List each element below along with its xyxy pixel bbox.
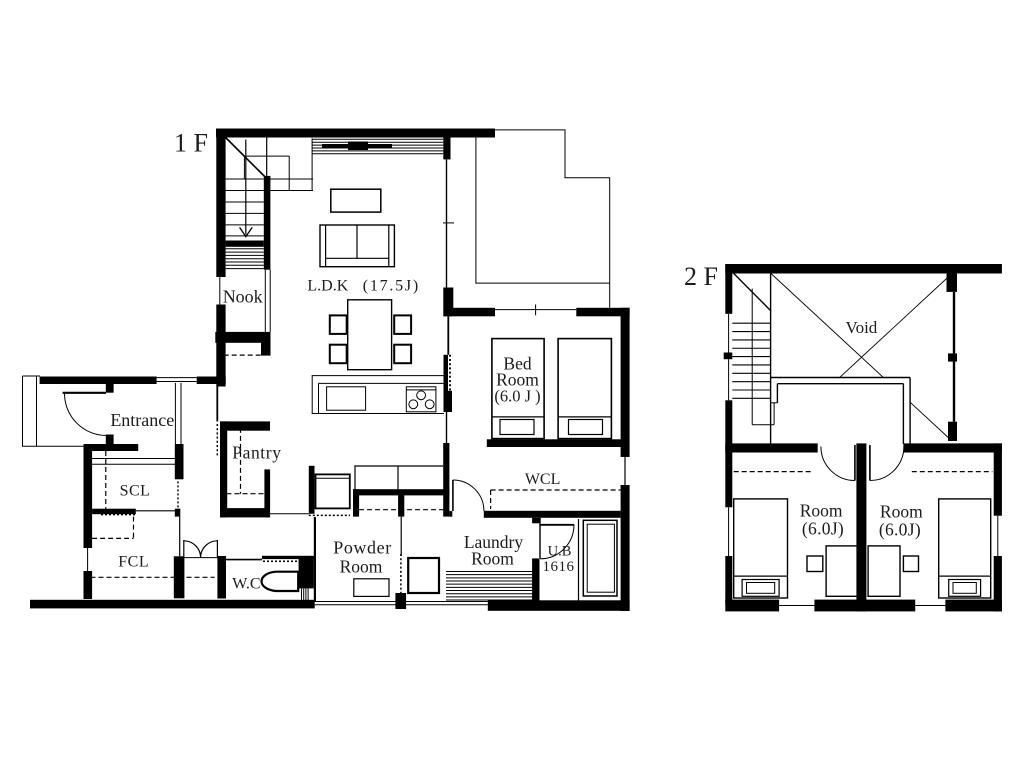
svg-text:Void: Void [845,318,877,337]
svg-text:Room: Room [340,557,383,577]
svg-text:Nook: Nook [223,286,263,306]
svg-text:W.C: W.C [232,576,260,593]
svg-text:1 F: 1 F [174,129,208,158]
svg-text:Room: Room [471,549,514,569]
svg-text:Room: Room [800,501,843,521]
svg-text:Powder: Powder [333,538,392,558]
svg-text:Pantry: Pantry [232,443,281,463]
svg-text:1616: 1616 [543,559,575,575]
svg-text:SCL: SCL [120,483,151,500]
svg-text:(6.0J): (6.0J) [802,519,844,539]
svg-text:(17.5J): (17.5J) [363,278,420,295]
svg-text:L.D.K: L.D.K [307,278,348,295]
svg-text:(6.0J): (6.0J) [879,520,921,540]
svg-text:2 F: 2 F [684,262,718,291]
svg-text:Room: Room [880,502,923,522]
svg-text:WCL: WCL [525,471,561,488]
svg-text:Entrance: Entrance [110,410,174,430]
svg-text:U.B: U.B [548,544,572,560]
svg-text:(6.0 J ): (6.0 J ) [494,387,540,406]
svg-text:FCL: FCL [118,554,149,571]
